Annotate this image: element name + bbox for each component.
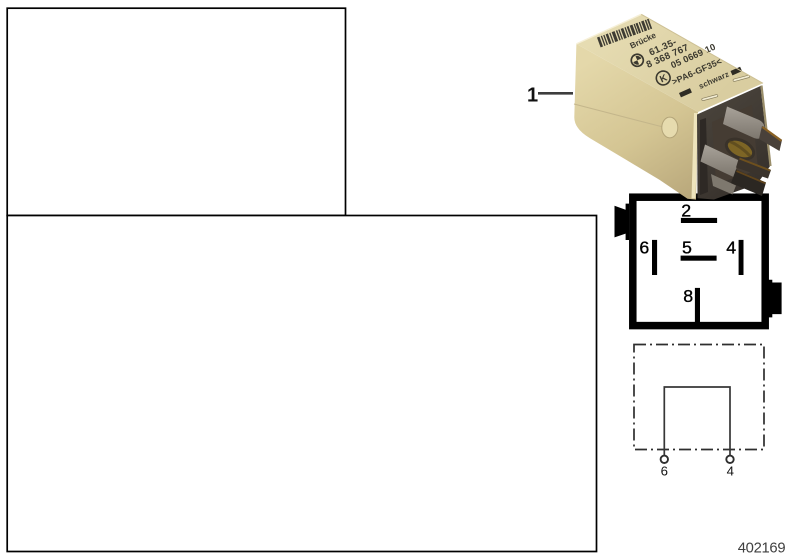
svg-text:6: 6 [661,464,668,479]
svg-text:402169: 402169 [738,540,786,556]
svg-text:5: 5 [682,238,692,258]
svg-text:4: 4 [726,238,736,258]
svg-text:4: 4 [727,464,734,479]
svg-text:1: 1 [527,85,538,107]
svg-text:6: 6 [639,238,649,258]
svg-text:2: 2 [681,201,691,221]
svg-text:8: 8 [683,286,693,306]
